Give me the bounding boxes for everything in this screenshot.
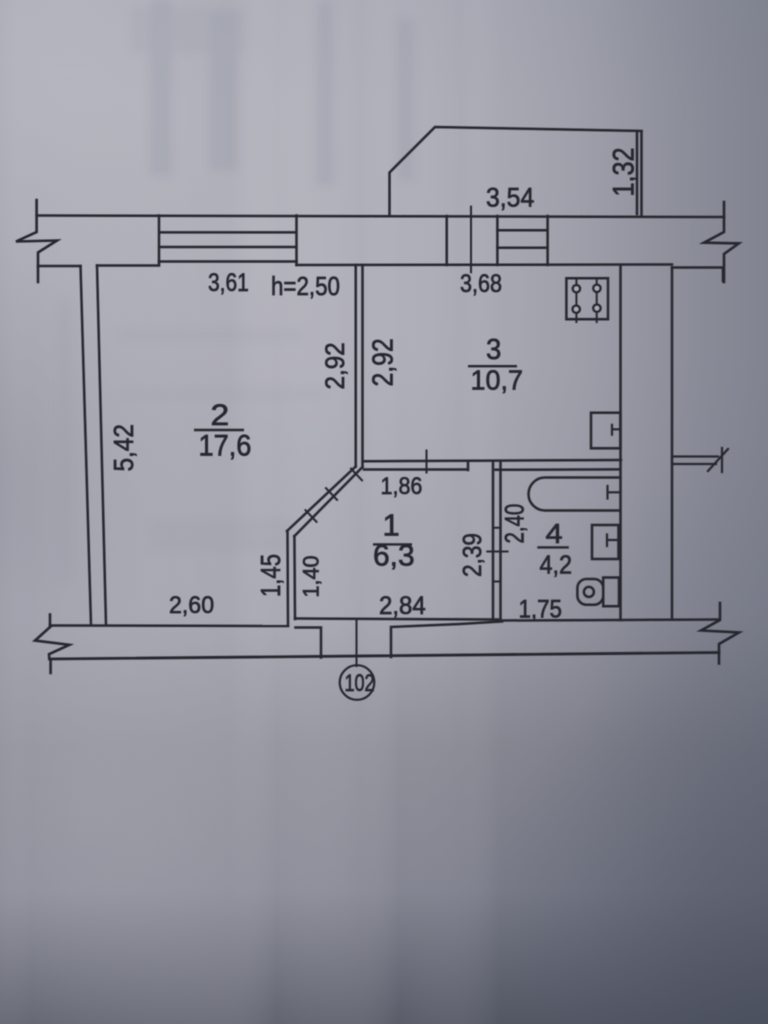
svg-text:102: 102 xyxy=(345,671,375,697)
svg-text:2,84: 2,84 xyxy=(379,593,426,621)
svg-text:4,2: 4,2 xyxy=(540,551,573,579)
svg-text:h=2,50: h=2,50 xyxy=(271,272,340,301)
svg-text:3: 3 xyxy=(486,332,501,365)
svg-text:2,92: 2,92 xyxy=(321,342,350,389)
svg-text:3,68: 3,68 xyxy=(460,270,502,298)
svg-text:2,40: 2,40 xyxy=(500,504,530,544)
svg-text:6,3: 6,3 xyxy=(373,540,415,573)
svg-text:3,61: 3,61 xyxy=(208,268,249,296)
svg-text:17,6: 17,6 xyxy=(199,429,252,463)
svg-text:4: 4 xyxy=(546,518,563,549)
svg-text:3,54: 3,54 xyxy=(486,184,534,213)
svg-text:1,40: 1,40 xyxy=(298,556,323,598)
svg-text:5,42: 5,42 xyxy=(107,424,139,471)
svg-text:1,86: 1,86 xyxy=(381,472,423,500)
svg-text:1,32: 1,32 xyxy=(606,147,640,196)
svg-text:1,75: 1,75 xyxy=(519,596,562,623)
svg-text:1: 1 xyxy=(383,508,400,543)
svg-text:10,7: 10,7 xyxy=(471,364,523,396)
svg-text:2: 2 xyxy=(211,398,230,432)
svg-text:2,60: 2,60 xyxy=(169,592,214,618)
svg-text:2,92: 2,92 xyxy=(367,338,399,386)
svg-text:1,45: 1,45 xyxy=(256,554,287,597)
svg-text:2,39: 2,39 xyxy=(459,533,488,577)
